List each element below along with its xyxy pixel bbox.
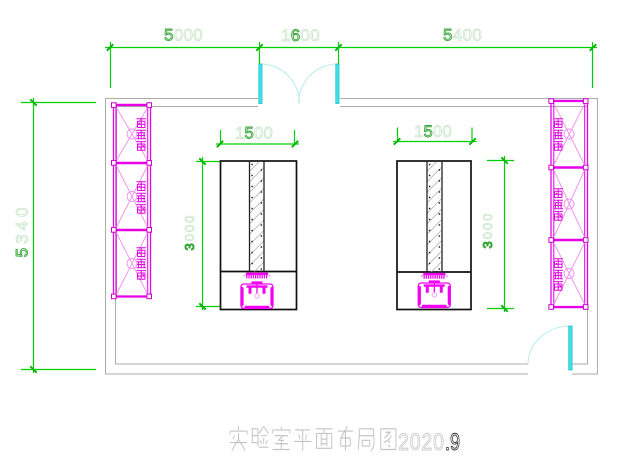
svg-text:.9: .9: [445, 430, 460, 456]
svg-text:5400: 5400: [443, 26, 482, 45]
svg-text:5340: 5340: [12, 204, 31, 258]
svg-text:3000: 3000: [480, 212, 495, 249]
svg-text:5000: 5000: [164, 26, 203, 45]
svg-text:3000: 3000: [182, 214, 197, 251]
svg-text:1600: 1600: [281, 26, 320, 45]
svg-text:2020: 2020: [398, 428, 445, 456]
svg-text:1500: 1500: [414, 123, 452, 141]
svg-text:1500: 1500: [235, 124, 273, 142]
